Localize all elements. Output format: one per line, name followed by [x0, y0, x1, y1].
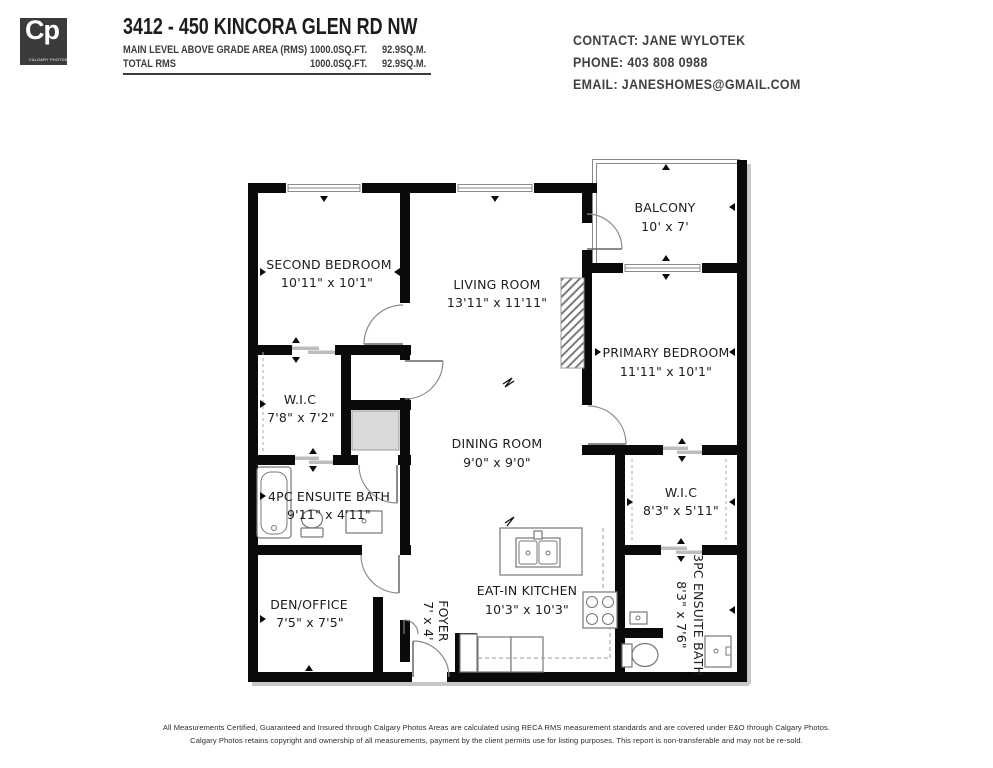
level-marker	[503, 378, 514, 387]
room-dims-second-bedroom: 10'11" x 10'1"	[281, 275, 373, 290]
door-entry	[412, 641, 449, 682]
room-dims-wic-right: 8'3" x 5'11"	[643, 503, 719, 518]
room-label-wic-right: W.I.C	[665, 485, 697, 500]
window-primary-balcony	[623, 263, 702, 273]
sliding-door-wic-ensuite	[295, 455, 333, 465]
sliding-door-bedroom-wic	[292, 345, 335, 355]
room-label-3pc-ensuite: 3PC ENSUITE BATH	[691, 554, 706, 676]
room-dims-wic-left: 7'8" x 7'2"	[267, 410, 335, 425]
closet-rod-right-wic	[632, 459, 726, 541]
room-label-second-bedroom: SECOND BEDROOM	[266, 257, 391, 272]
toilet-3pc	[622, 644, 658, 668]
room-dims-3pc-ensuite: 8'3" x 7'6"	[674, 581, 689, 649]
room-label-dining-room: DINING ROOM	[452, 436, 543, 451]
room-dims-primary-bedroom: 11'11" x 10'1"	[620, 364, 712, 379]
disclaimer: All Measurements Certified, Guaranteed a…	[0, 721, 993, 747]
door-den-office	[361, 545, 400, 593]
room-dims-dining-room: 9'0" x 9'0"	[463, 455, 531, 470]
door-second-bedroom	[364, 303, 410, 345]
door-primary-bedroom	[582, 405, 626, 445]
utility-closet	[352, 411, 399, 450]
room-label-living-room: LIVING ROOM	[453, 277, 540, 292]
disclaimer-line2: Calgary Photos retains copyright and own…	[0, 734, 993, 747]
room-dims-4pc-ensuite: 9'11" x 4'11"	[287, 507, 371, 522]
room-dims-balcony: 10' x 7'	[641, 219, 689, 234]
room-label-4pc-ensuite: 4PC ENSUITE BATH	[268, 489, 390, 504]
window-second-bedroom	[286, 183, 362, 193]
room-label-primary-bedroom: PRIMARY BEDROOM	[603, 345, 730, 360]
level-marker	[505, 517, 514, 526]
stove	[583, 592, 617, 628]
room-dims-kitchen: 10'3" x 10'3"	[485, 602, 569, 617]
room-dims-den-office: 7'5" x 7'5"	[276, 615, 344, 630]
sink-3pc	[630, 612, 647, 624]
vanity-3pc	[705, 636, 731, 667]
room-label-balcony: BALCONY	[634, 200, 695, 215]
fireplace	[561, 278, 584, 368]
door-closet-nook	[400, 360, 443, 399]
room-label-foyer: FOYER	[436, 600, 451, 642]
room-label-kitchen: EAT-IN KITCHEN	[477, 583, 577, 598]
sliding-door-primary-wic	[663, 445, 702, 455]
floorplan-drawing: SECOND BEDROOM 10'11" x 10'1" LIVING ROO…	[0, 0, 993, 768]
floorplan-sheet: Cp CALGARY PHOTOS 3412 - 450 KINCORA GLE…	[0, 0, 993, 768]
room-dims-foyer: 7' x 4'	[421, 601, 436, 641]
room-label-den-office: DEN/OFFICE	[270, 597, 348, 612]
disclaimer-line1: All Measurements Certified, Guaranteed a…	[0, 721, 993, 734]
window-living-room	[456, 183, 534, 193]
room-dims-living-room: 13'11" x 11'11"	[447, 295, 547, 310]
kitchen-appliances	[460, 634, 543, 672]
room-label-wic-left: W.I.C	[284, 392, 316, 407]
kitchen-island	[500, 528, 582, 575]
